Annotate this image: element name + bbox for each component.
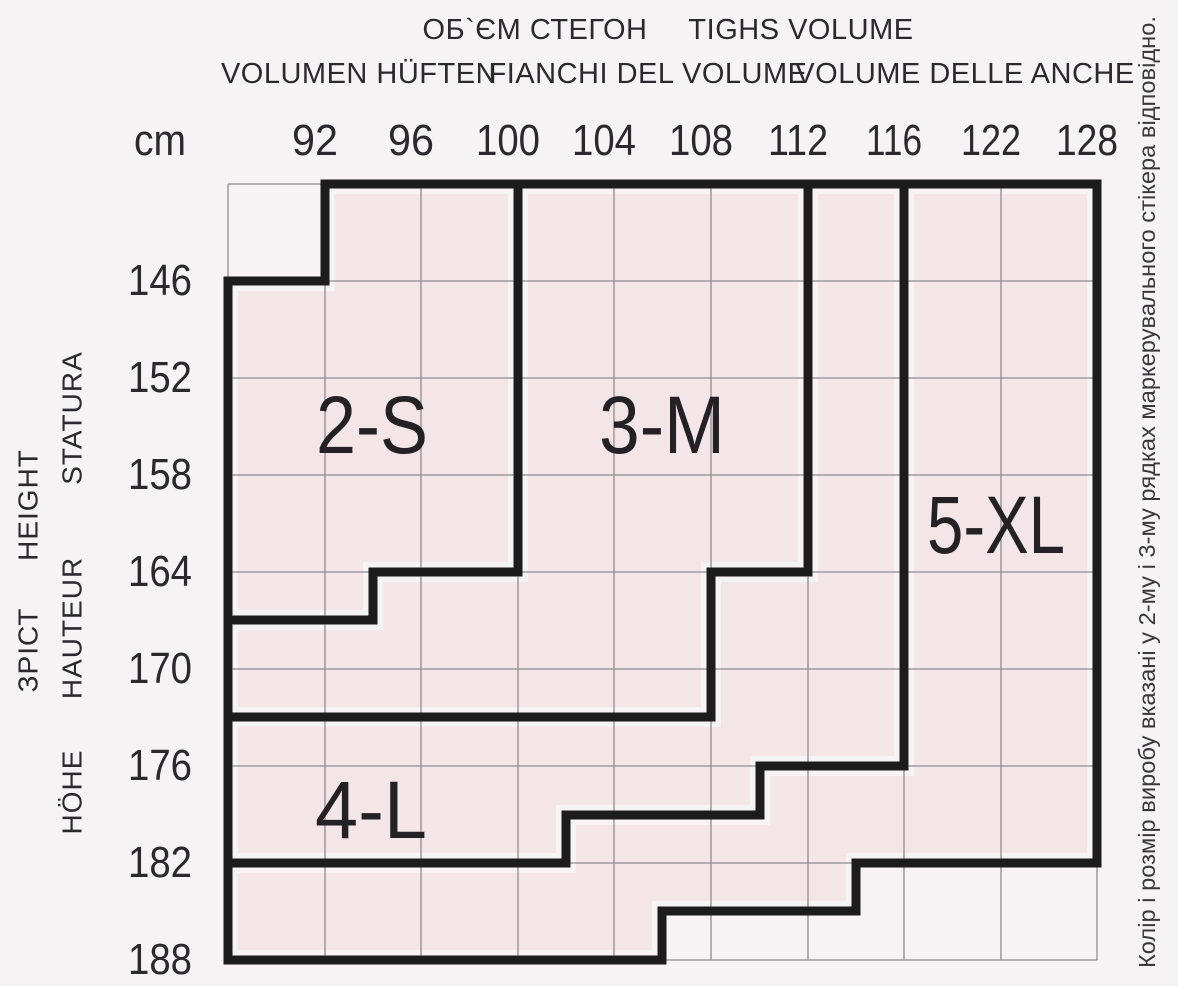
col-100: 100: [476, 116, 540, 165]
axis-title-statura: STATURA: [57, 351, 88, 485]
size-chart-figure: ОБ`ЄМ СТЕГОН TIGHS VOLUME VOLUMEN HÜFTEN…: [0, 0, 1178, 986]
zone-3m-label: 3-M: [599, 380, 725, 471]
col-128: 128: [1056, 116, 1118, 165]
axis-title-hohe: HÖHE: [57, 750, 88, 835]
header-it-anche: VOLUME DELLE ANCHE: [795, 58, 1134, 90]
col-112: 112: [768, 116, 828, 165]
header-de: VOLUMEN HÜFTEN: [221, 58, 497, 90]
row-146: 146: [128, 256, 192, 305]
zone-4l-label: 4-L: [315, 765, 427, 856]
header-en: TIGHS VOLUME: [688, 14, 913, 46]
header-it-fianchi: FIANCHI DEL VOLUME: [489, 58, 808, 90]
axis-title-hauteur: HAUTEUR: [57, 557, 88, 699]
marking-sticker-note: Колір і розмір виробу вказані у 2-му і 3…: [1134, 16, 1160, 968]
col-104: 104: [572, 116, 636, 165]
col-96: 96: [388, 116, 434, 165]
header-uk: ОБ`ЄМ СТЕГОН: [423, 14, 648, 46]
unit-label: cm: [134, 116, 186, 165]
zone-5xl-label: 5-XL: [927, 480, 1065, 571]
col-108: 108: [669, 116, 733, 165]
axis-title-zrist: ЗРІСТ: [13, 608, 44, 693]
row-176: 176: [128, 741, 192, 790]
col-92: 92: [292, 116, 338, 165]
col-116: 116: [866, 116, 922, 165]
size-chart-page: ОБ`ЄМ СТЕГОН TIGHS VOLUME VOLUMEN HÜFTEN…: [0, 0, 1178, 986]
axis-title-height: HEIGHT: [13, 449, 44, 561]
row-158: 158: [128, 450, 192, 499]
row-152: 152: [128, 353, 192, 402]
row-164: 164: [128, 547, 192, 596]
row-188: 188: [128, 935, 192, 984]
row-170: 170: [128, 644, 192, 693]
row-182: 182: [128, 838, 192, 887]
zone-2s-label: 2-S: [316, 380, 428, 471]
col-122: 122: [961, 116, 1021, 165]
